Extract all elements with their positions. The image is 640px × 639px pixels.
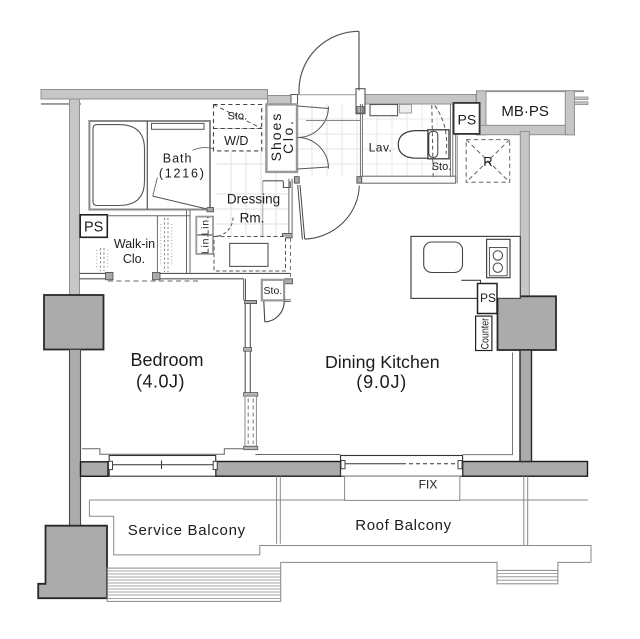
svg-text:Dressing: Dressing [227, 192, 280, 207]
svg-text:W/D: W/D [224, 134, 248, 148]
svg-text:Roof Balcony: Roof Balcony [355, 517, 451, 534]
svg-text:Counter: Counter [480, 318, 492, 350]
svg-text:Lin.: Lin. [200, 215, 212, 235]
svg-text:Lav.: Lav. [369, 141, 393, 155]
svg-text:R: R [483, 154, 492, 169]
svg-text:Walk-in: Walk-in [114, 237, 155, 251]
svg-text:PS: PS [480, 291, 496, 305]
svg-text:Bath: Bath [163, 151, 193, 165]
svg-text:Service Balcony: Service Balcony [128, 522, 246, 539]
svg-text:(4.0J): (4.0J) [136, 372, 185, 392]
svg-text:MB·PS: MB·PS [501, 103, 549, 120]
svg-text:Sto.: Sto. [264, 285, 283, 297]
svg-text:Rm.: Rm. [240, 211, 265, 226]
svg-text:(1216): (1216) [159, 166, 206, 180]
svg-text:PS: PS [84, 220, 103, 236]
svg-text:Lin.: Lin. [200, 234, 212, 254]
svg-text:FIX: FIX [419, 477, 438, 491]
svg-text:Clo.: Clo. [280, 119, 296, 154]
svg-text:PS: PS [458, 111, 477, 127]
svg-text:Bedroom: Bedroom [130, 350, 203, 370]
svg-text:Sto.: Sto. [228, 110, 248, 122]
svg-text:(9.0J): (9.0J) [356, 372, 407, 392]
svg-text:Sto.: Sto. [432, 161, 452, 173]
svg-text:Dining Kitchen: Dining Kitchen [325, 352, 440, 372]
svg-text:Clo.: Clo. [123, 252, 145, 266]
